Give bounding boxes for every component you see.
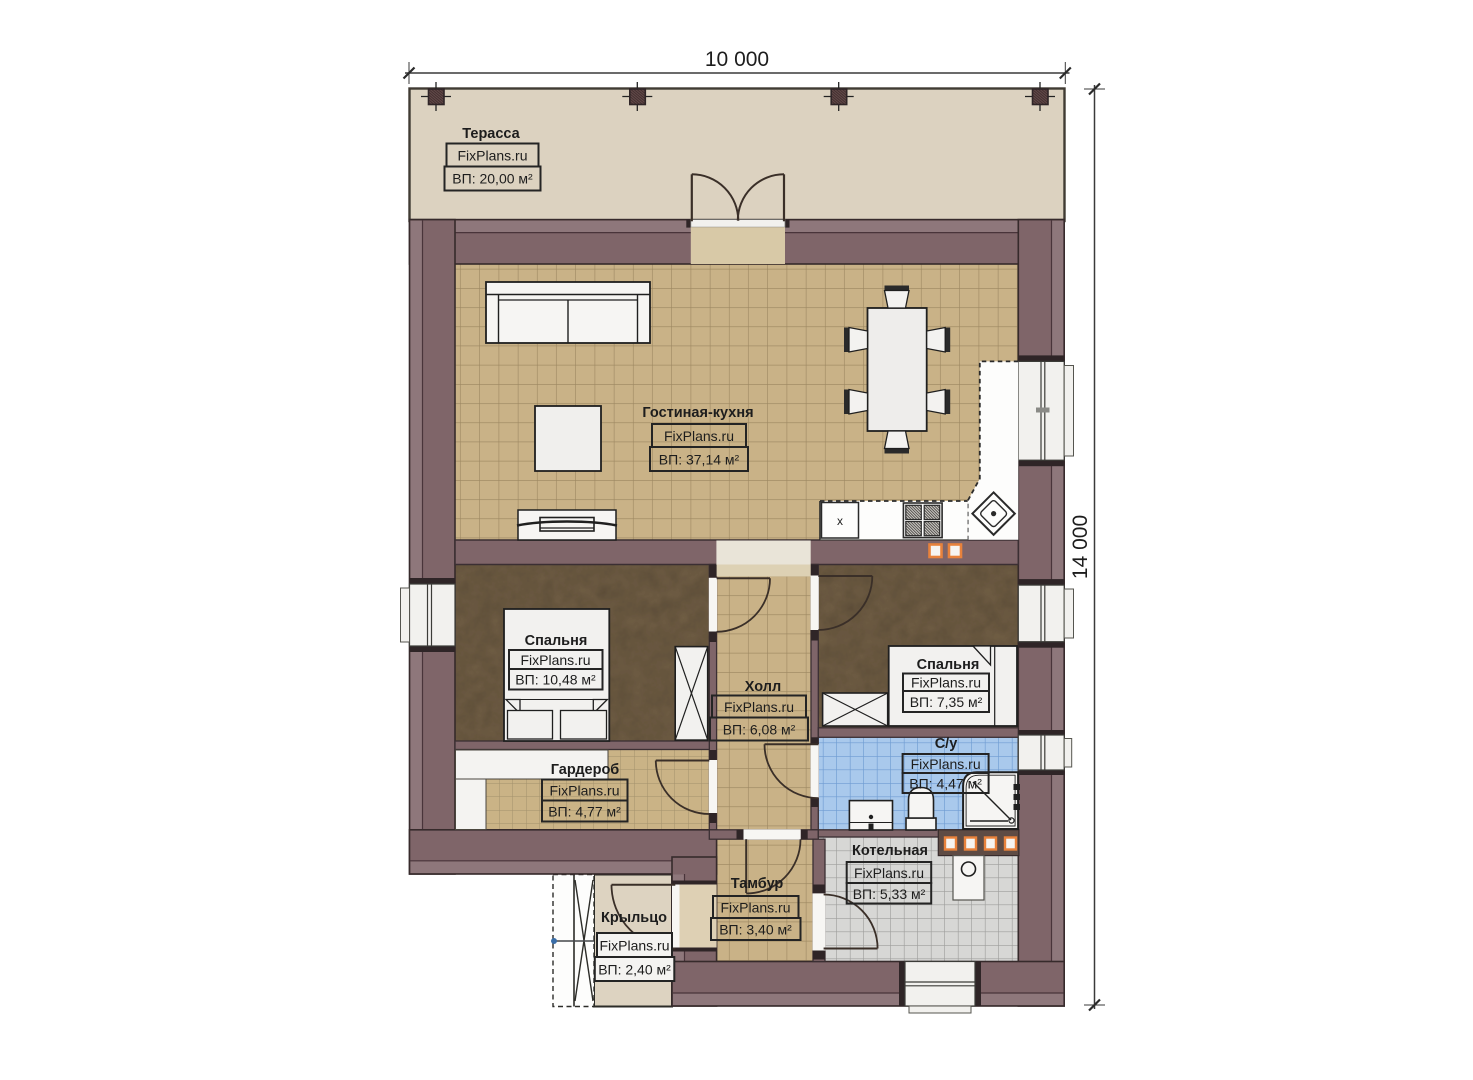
svg-text:FixPlans.ru: FixPlans.ru — [854, 865, 924, 881]
svg-text:ВП: 10,48 м²: ВП: 10,48 м² — [515, 672, 596, 688]
svg-text:10 000: 10 000 — [705, 48, 769, 71]
svg-text:FixPlans.ru: FixPlans.ru — [664, 428, 734, 444]
svg-text:Котельная: Котельная — [852, 843, 928, 859]
svg-text:ВП: 4,47 м²: ВП: 4,47 м² — [909, 776, 982, 792]
svg-text:ВП: 6,08 м²: ВП: 6,08 м² — [723, 722, 796, 738]
svg-text:Спальня: Спальня — [525, 633, 588, 649]
svg-text:Тамбур: Тамбур — [731, 876, 784, 892]
svg-text:FixPlans.ru: FixPlans.ru — [520, 652, 590, 668]
svg-text:Гардероб: Гардероб — [551, 762, 620, 778]
svg-text:FixPlans.ru: FixPlans.ru — [911, 675, 981, 691]
svg-text:14 000: 14 000 — [1069, 515, 1092, 579]
svg-text:С/у: С/у — [935, 736, 958, 752]
svg-text:ВП: 20,00 м²: ВП: 20,00 м² — [452, 171, 533, 187]
svg-text:ВП: 7,35 м²: ВП: 7,35 м² — [910, 694, 983, 710]
svg-text:Спальня: Спальня — [917, 657, 980, 673]
svg-text:x: x — [837, 514, 843, 528]
svg-text:Холл: Холл — [745, 679, 781, 695]
svg-text:ВП: 3,40 м²: ВП: 3,40 м² — [719, 922, 792, 938]
svg-text:ВП: 37,14 м²: ВП: 37,14 м² — [659, 452, 740, 468]
svg-text:Гостиная-кухня: Гостиная-кухня — [642, 405, 753, 421]
svg-text:FixPlans.ru: FixPlans.ru — [599, 938, 669, 954]
svg-text:ВП: 2,40 м²: ВП: 2,40 м² — [598, 962, 671, 978]
svg-text:ВП: 5,33 м²: ВП: 5,33 м² — [853, 886, 926, 902]
svg-text:FixPlans.ru: FixPlans.ru — [720, 900, 790, 916]
svg-text:FixPlans.ru: FixPlans.ru — [457, 148, 527, 164]
svg-text:FixPlans.ru: FixPlans.ru — [724, 699, 794, 715]
svg-text:FixPlans.ru: FixPlans.ru — [911, 756, 981, 772]
svg-text:ВП: 4,77 м²: ВП: 4,77 м² — [548, 804, 621, 820]
svg-text:Крыльцо: Крыльцо — [601, 910, 667, 926]
svg-text:FixPlans.ru: FixPlans.ru — [549, 783, 619, 799]
svg-text:Терасса: Терасса — [462, 126, 520, 142]
